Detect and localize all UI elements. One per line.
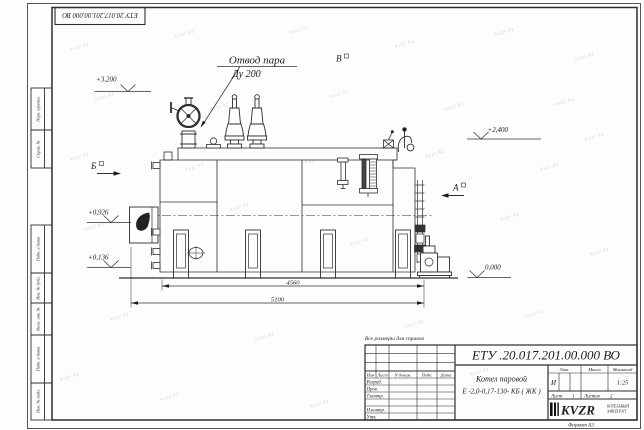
tb-signature-rows: Разраб. Пров. Т.контр. Н.контр. Утв. [366,381,386,421]
elevation-3200: +3,200 [96,76,117,84]
steam-outlet-valve [171,98,200,148]
tb-doc-number: ЕТУ .20.017.201.00.000 ВО [471,348,620,363]
drum-fitting [207,138,221,148]
tb-sheet-value: 1 [572,394,574,399]
tb-sheet-label: Лист [550,394,563,399]
safety-valve-2 [248,95,267,148]
manhole [187,246,205,260]
margin-label-inv-podl: Инв. № подл. [36,389,41,414]
kvzr-logo-icon [550,403,559,417]
margin-label-sprav-no: Справ. № [36,140,41,157]
margin-label-inv-dubl: Инв. № дубл. [36,276,41,300]
section-b-label: Б [90,161,97,171]
engineering-drawing: ЕТУ 20.017.201.00.000 ВО Перв. примен. С… [0,0,644,430]
tb-row-utv: Утв. [367,416,377,421]
margin-label-podp-data-2: Подп. и дата [36,347,41,373]
section-a-label: А [452,183,459,193]
tb-header-ndokum: N докум. [394,372,412,377]
margin-label-perv-primen: Перв. примен. [36,96,41,122]
steam-outlet-callout: Отвод пара Ду 200 [201,55,298,128]
tb-header-data: Дата [440,372,452,377]
steam-outlet-text-1: Отвод пара [229,55,286,67]
tb-product-name-1: Котел паровой [475,375,527,384]
burner-box [130,207,159,243]
section-labels: Б А В [90,54,466,198]
boiler-support-legs [174,230,411,278]
water-gauge-1 [338,158,349,189]
tb-lit-value: И [550,379,557,387]
margin-label-vzam-inv: Взам. инв. № [36,307,41,331]
doc-number-rotated: ЕТУ 20.017.201.00.000 ВО [62,11,139,18]
kvzr-logo: KVZR КОТЕЛЬНЫЙ ЗАВОД РЭП [550,403,629,418]
tb-product-name-2: Е -2,0-0,17-130- КБ ( ЖК ) [461,388,541,396]
tb-scale-value: 1:25 [617,380,628,387]
lever-safety-device [398,127,414,152]
right-top-valve [382,130,396,148]
tb-row-prov: Пров. [366,388,379,393]
tb-row-razrab: Разраб. [366,381,382,386]
tb-header-podp: Подп. [420,372,432,377]
doc-number-rotated-box: ЕТУ 20.017.201.00.000 ВО [55,8,145,25]
tb-header-izm: Изм [366,372,375,377]
tb-lit-massa-masshtab: Лит. Масса Масштаб [559,367,633,372]
margin-columns [31,88,52,420]
tb-sheets-label: Листов [583,394,600,399]
tb-header-list: Лист [376,372,388,377]
tb-row-tkontr: Т.контр. [367,395,384,400]
format-label: Формат А3 [568,423,594,429]
margin-label-podp-data-1: Подп. и дата [36,237,41,263]
tb-lit-header: Лит. [559,367,570,372]
elevation-0926: +0,926 [88,209,109,217]
tb-header-row: Изм Лист N докум. Подп. Дата [366,372,452,377]
water-gauge-2 [360,155,378,198]
tb-row-nkontr: Н.контр. [366,409,386,414]
safety-valve-1 [225,95,244,148]
kvzr-logo-sub-1: КОТЕЛЬНЫЙ [606,403,629,409]
reference-note: Все размеры для справок [365,335,425,342]
dim-5100: 5100 [271,296,285,303]
elevation-0000: 0,000 [485,264,501,272]
dim-4560: 4560 [286,279,300,286]
steam-outlet-text-2: Ду 200 [231,69,260,80]
elevation-0136: +0,136 [88,254,109,262]
view-b-label: В [336,54,342,64]
tb-masshtab-header: Масштаб [612,367,633,372]
elevation-2400: +2,400 [488,126,509,134]
tb-massa-header: Масса [587,367,601,372]
kvzr-logo-text: KVZR [560,403,595,418]
kvzr-logo-sub-2: ЗАВОД РЭП [607,410,626,414]
margin-column-labels: Перв. примен. Справ. № Подп. и дата Инв.… [36,96,41,414]
drawing-sheet: kvzr.kzkvzr.kzkvzr.kzkvzr.kzkvzr.kzkvzr.… [0,0,644,430]
